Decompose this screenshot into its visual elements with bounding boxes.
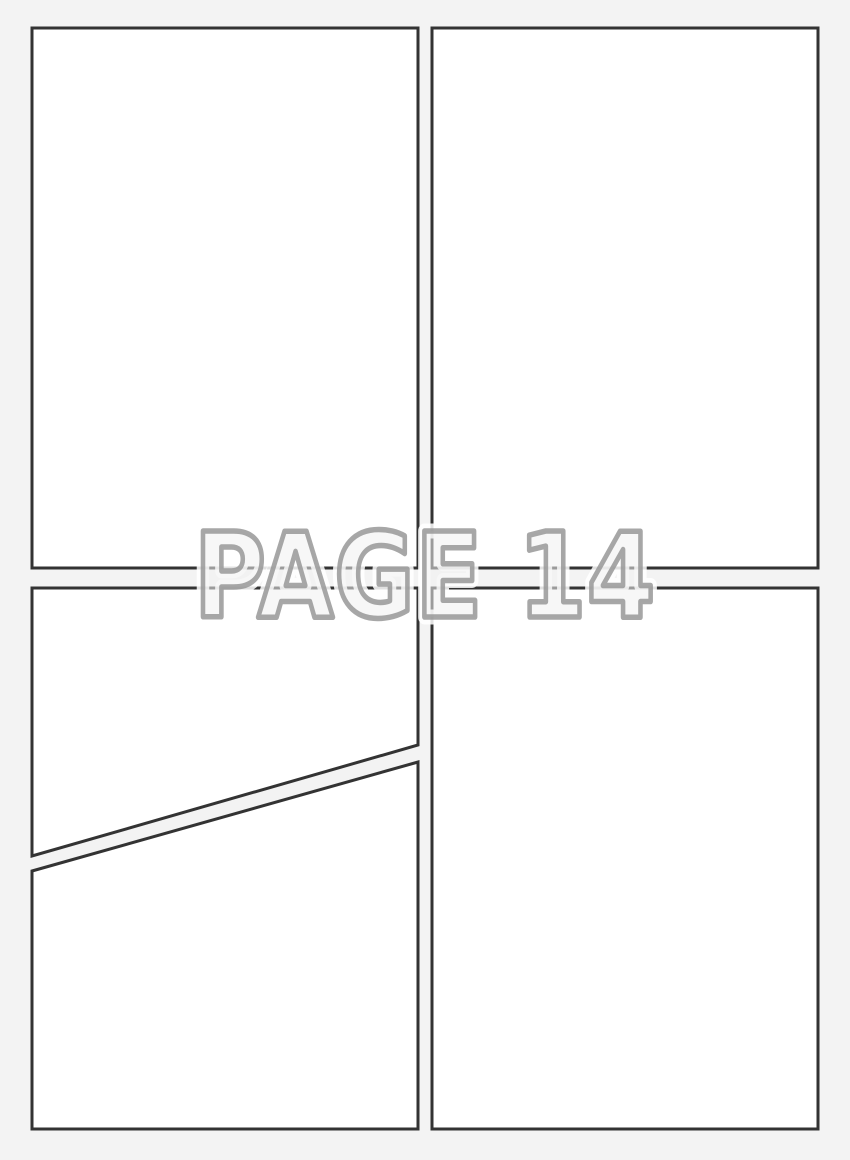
comic-page-template: PAGE 14 PAGE 14 [0, 0, 850, 1160]
page-label-text: PAGE 14 [194, 507, 656, 645]
page-canvas: PAGE 14 PAGE 14 [0, 0, 850, 1160]
panel-top-left [32, 28, 418, 568]
page-label: PAGE 14 PAGE 14 [194, 507, 656, 645]
panel-top-right [432, 28, 818, 568]
panel-bottom-right [432, 588, 818, 1129]
